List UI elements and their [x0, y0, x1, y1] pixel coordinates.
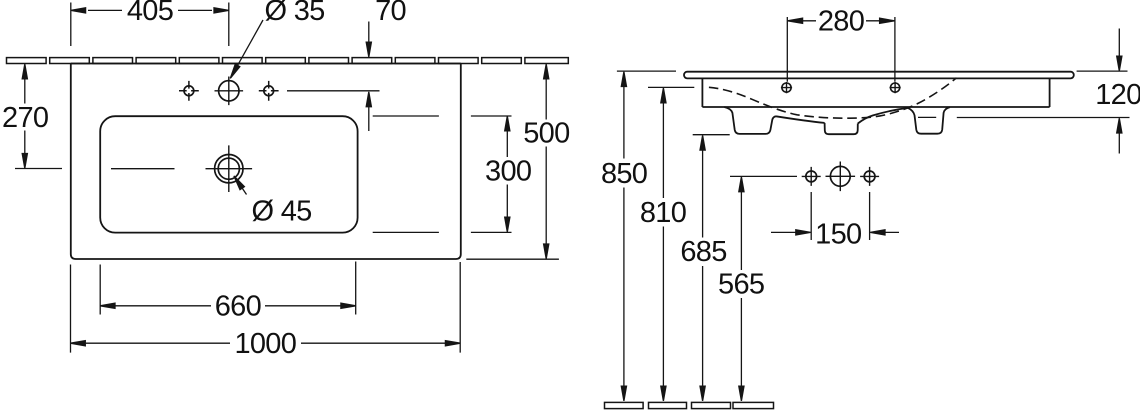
- svg-text:405: 405: [127, 0, 173, 27]
- svg-text:660: 660: [215, 291, 261, 323]
- svg-text:Ø 35: Ø 35: [265, 0, 325, 27]
- svg-text:70: 70: [375, 0, 406, 27]
- svg-text:850: 850: [601, 158, 647, 190]
- svg-text:685: 685: [680, 236, 726, 268]
- svg-text:270: 270: [2, 102, 48, 134]
- svg-text:1000: 1000: [234, 328, 296, 360]
- svg-text:565: 565: [718, 269, 764, 301]
- svg-text:Ø 45: Ø 45: [252, 196, 312, 228]
- svg-text:150: 150: [815, 218, 861, 250]
- svg-text:500: 500: [523, 118, 569, 150]
- svg-text:810: 810: [640, 197, 686, 229]
- svg-text:120: 120: [1095, 79, 1140, 111]
- svg-text:300: 300: [485, 156, 531, 188]
- svg-text:280: 280: [818, 5, 864, 37]
